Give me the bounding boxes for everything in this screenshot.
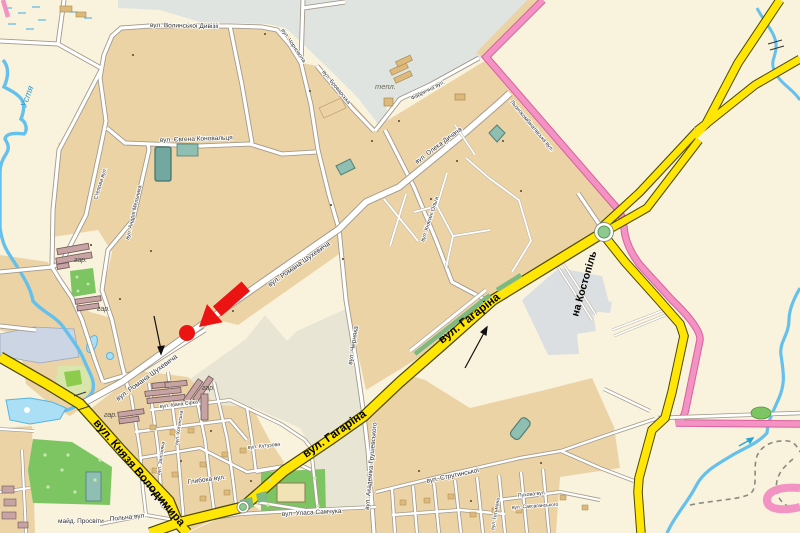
svg-text:гар.: гар.	[104, 412, 117, 419]
svg-text:тепл.: тепл.	[375, 82, 396, 91]
svg-text:гар.: гар.	[97, 306, 110, 313]
svg-text:вул. Волинської Дивізії: вул. Волинської Дивізії	[150, 21, 219, 30]
svg-text:майд. Просвіти: майд. Просвіти	[58, 517, 104, 525]
svg-text:гар.: гар.	[74, 257, 87, 264]
svg-text:гар.: гар.	[202, 385, 215, 392]
